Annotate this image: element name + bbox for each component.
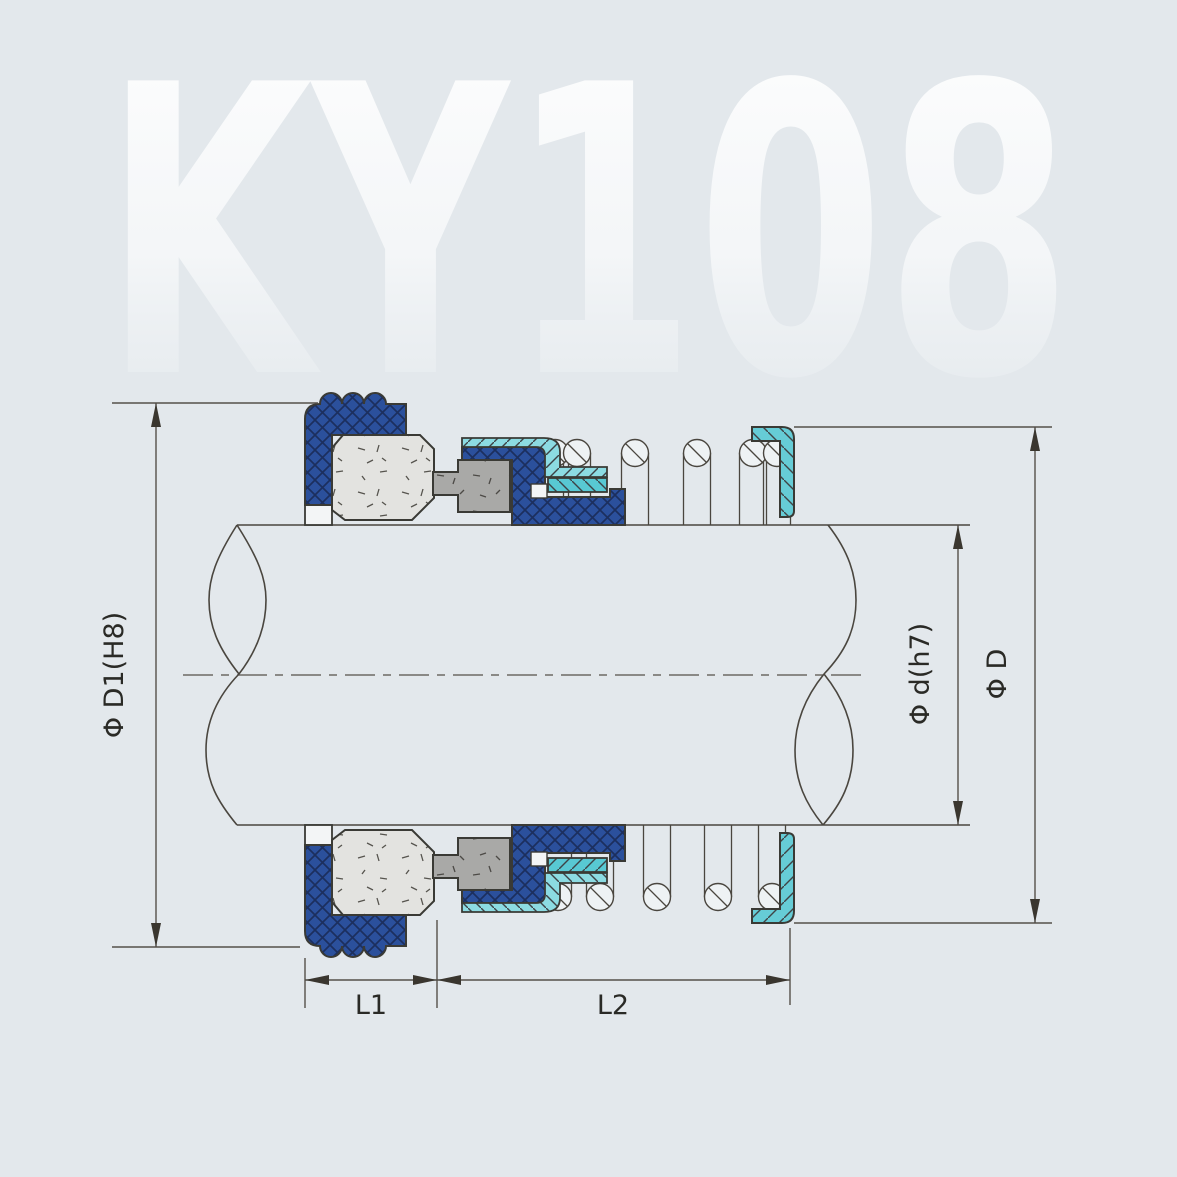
arrow-left-icon <box>437 975 461 985</box>
dim-label-d1: Φ D1(H8) <box>99 612 130 738</box>
rotating-seal-face <box>332 435 434 520</box>
watermark-text: KY108 <box>103 2 1073 467</box>
arrow-up-icon <box>953 525 963 549</box>
arrow-down-icon <box>151 923 161 947</box>
arrow-down-icon <box>953 801 963 825</box>
cup-gasket <box>752 427 794 517</box>
bellows-foot <box>305 505 332 525</box>
arrow-right-icon <box>766 975 790 985</box>
dim-label-l1: L1 <box>355 990 387 1021</box>
dim-label-d: Φ d(h7) <box>905 623 936 725</box>
seal-cross-section-diagram: KY108 <box>0 0 1177 1177</box>
dim-label-l2: L2 <box>597 990 629 1021</box>
arrow-down-icon <box>1030 899 1040 923</box>
arrow-right-icon <box>413 975 437 985</box>
arrow-left-icon <box>305 975 329 985</box>
stationary-seat <box>433 460 510 512</box>
dimension-d: Φ d(h7) <box>905 525 963 825</box>
inner-gasket <box>548 478 607 492</box>
dim-label-D: Φ D <box>982 649 1013 700</box>
dimensions: Φ D1(H8) Φ d(h7) Φ D L1 L2 <box>99 403 1052 1021</box>
page: KY108 <box>0 0 1177 1177</box>
retainer-slot <box>531 484 547 498</box>
